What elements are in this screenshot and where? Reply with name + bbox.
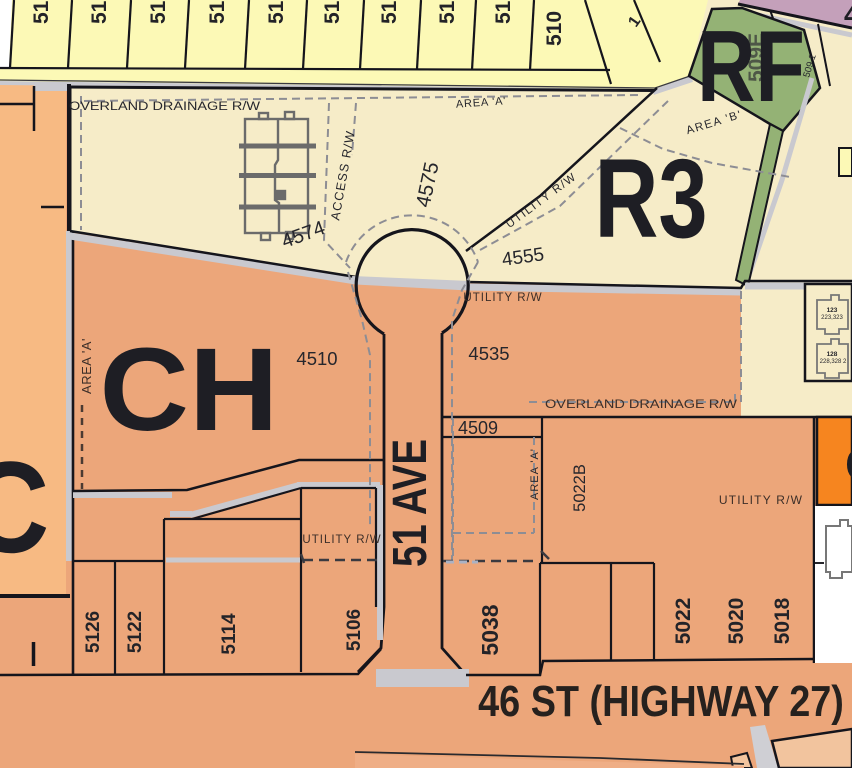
svg-text:128: 128 <box>827 351 838 358</box>
svg-text:5020: 5020 <box>725 598 748 645</box>
svg-text:5126: 5126 <box>83 611 104 653</box>
svg-text:228,328 2: 228,328 2 <box>820 359 847 365</box>
svg-text:51: 51 <box>378 0 401 24</box>
svg-text:AREA 'A': AREA 'A' <box>79 338 94 394</box>
svg-text:51 AVE: 51 AVE <box>384 439 437 567</box>
svg-text:5022: 5022 <box>672 598 695 645</box>
svg-text:5022B: 5022B <box>571 464 589 512</box>
svg-text:46 ST (HIGHWAY 27): 46 ST (HIGHWAY 27) <box>478 676 844 725</box>
svg-text:51: 51 <box>321 0 344 24</box>
svg-text:OVERLAND DRAINAGE R/W: OVERLAND DRAINAGE R/W <box>69 101 260 113</box>
svg-text:UTILITY R/W: UTILITY R/W <box>463 292 542 304</box>
svg-text:510: 510 <box>543 11 566 46</box>
svg-text:4535: 4535 <box>468 343 509 364</box>
svg-text:CH: CH <box>100 323 279 456</box>
svg-text:UTILITY R/W: UTILITY R/W <box>719 493 803 507</box>
svg-text:RF: RF <box>697 10 805 123</box>
svg-text:51: 51 <box>206 0 229 24</box>
svg-text:5122: 5122 <box>125 611 146 653</box>
svg-text:51: 51 <box>88 0 111 24</box>
svg-text:51: 51 <box>147 0 170 24</box>
svg-text:4: 4 <box>844 0 852 30</box>
svg-text:51: 51 <box>436 0 459 24</box>
svg-text:5106: 5106 <box>344 609 365 651</box>
svg-text:4509: 4509 <box>458 418 498 438</box>
svg-text:5018: 5018 <box>771 597 794 644</box>
svg-text:4510: 4510 <box>296 348 337 369</box>
svg-text:OVERLAND DRAINAGE R/W: OVERLAND DRAINAGE R/W <box>545 399 737 411</box>
svg-text:51: 51 <box>492 0 515 24</box>
svg-text:51: 51 <box>30 0 53 24</box>
svg-text:C: C <box>845 439 852 492</box>
svg-text:5114: 5114 <box>219 613 240 655</box>
svg-text:5038: 5038 <box>477 604 503 655</box>
svg-text:223,323: 223,323 <box>821 315 843 321</box>
svg-text:R3: R3 <box>594 137 707 261</box>
svg-text:C: C <box>0 434 49 579</box>
svg-text:123: 123 <box>827 307 838 314</box>
svg-text:AREA 'A': AREA 'A' <box>529 448 541 500</box>
svg-text:UTILITY R/W: UTILITY R/W <box>302 534 381 546</box>
svg-text:51: 51 <box>265 0 288 24</box>
